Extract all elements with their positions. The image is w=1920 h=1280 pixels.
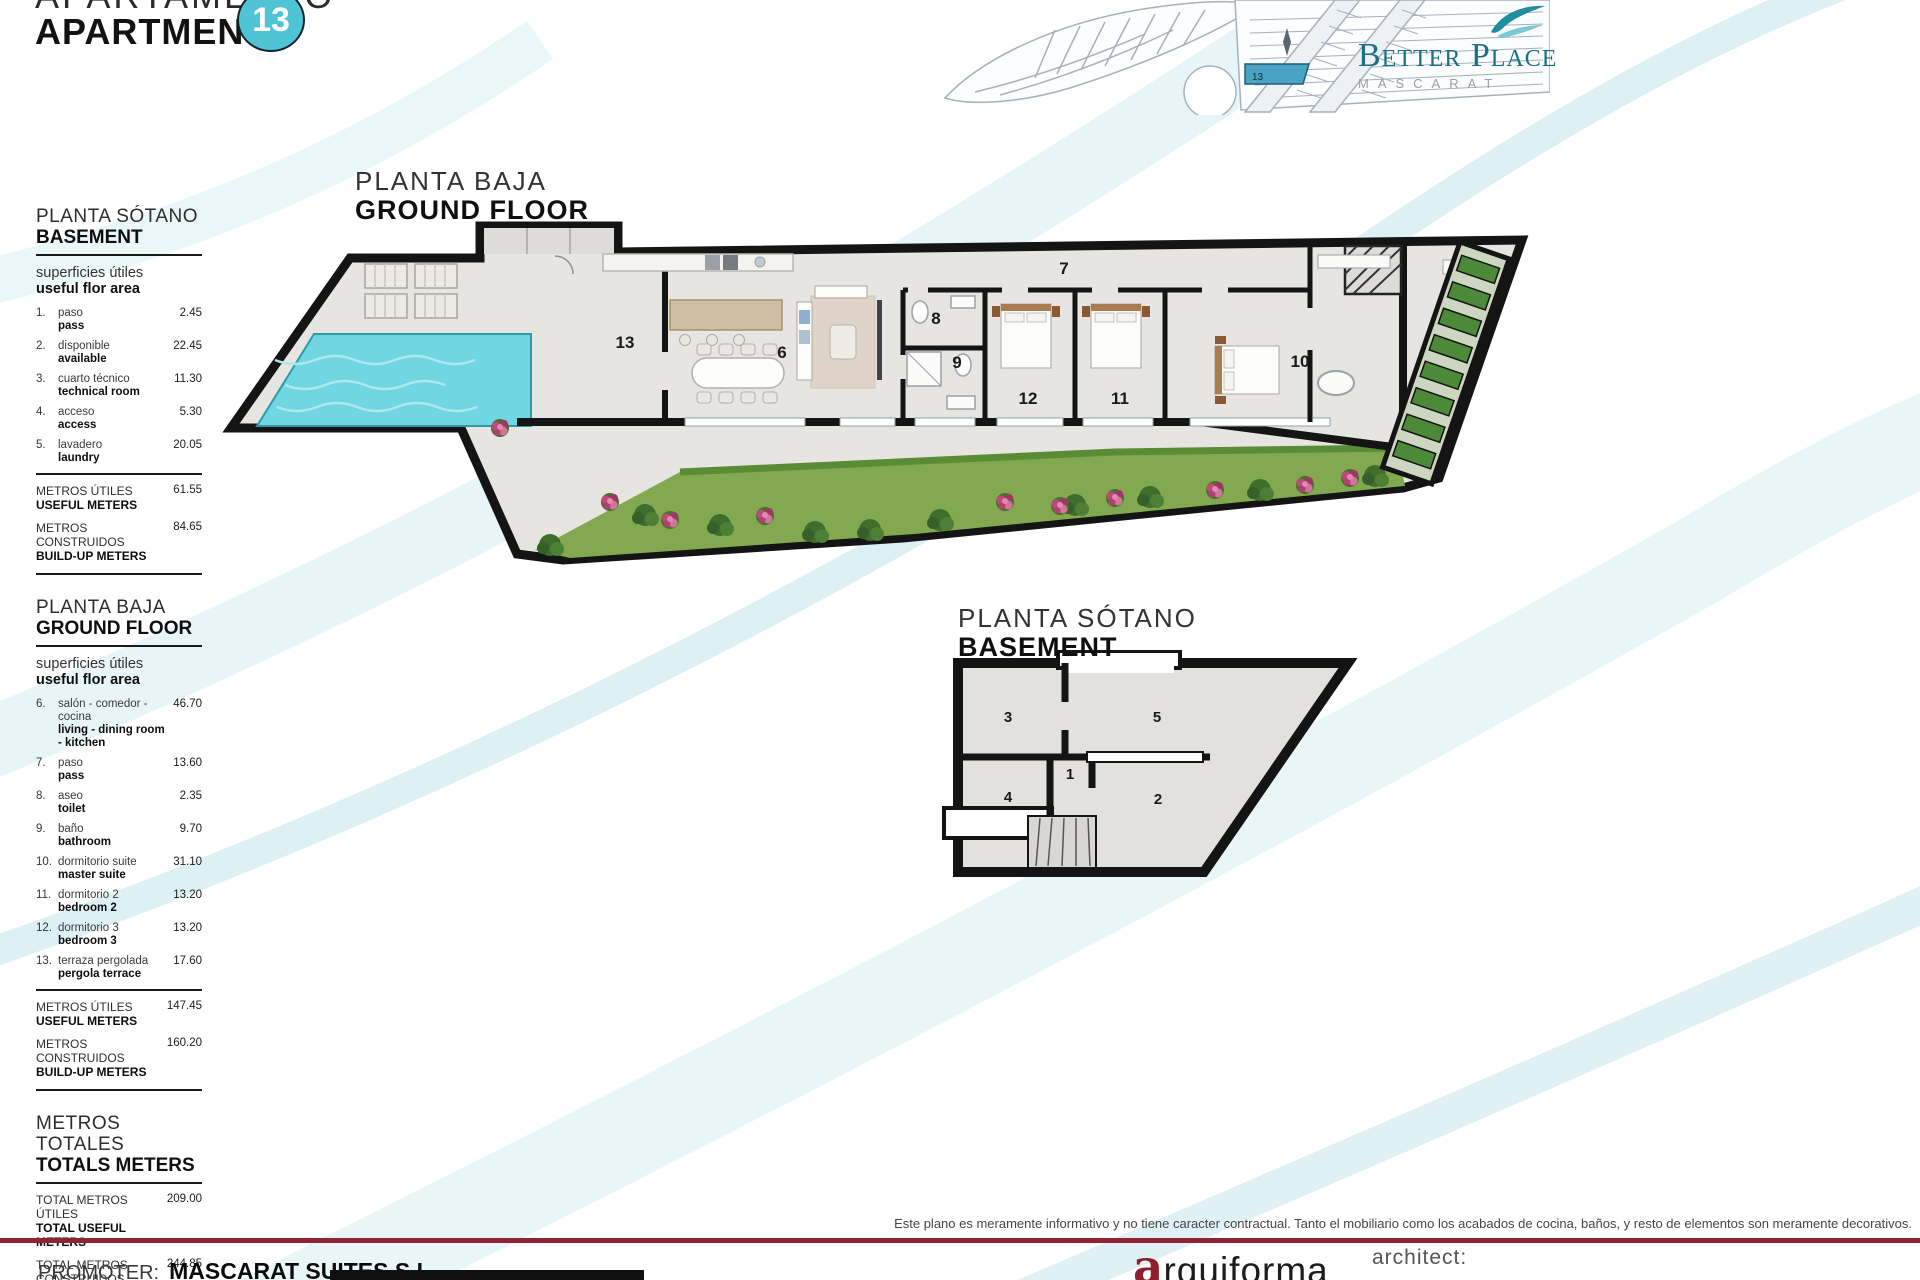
room-number: 3 (1004, 709, 1012, 726)
row-value: 17.60 (173, 955, 202, 968)
total-label: METROS ÚTILESUSEFUL METERS (36, 1000, 167, 1028)
row-value: 2.35 (180, 790, 202, 803)
row-value: 46.70 (173, 698, 202, 711)
total-row: METROS CONSTRUIDOSBUILD-UP METERS84.65 (36, 521, 202, 563)
row-label: salón - comedor - cocinaliving - dining … (58, 698, 173, 750)
sidebar: PLANTA SÓTANOBASEMENTsuperficies útilesu… (36, 206, 202, 1280)
basement-stairs-icon (1028, 816, 1096, 868)
row-value: 13.20 (173, 922, 202, 935)
divider (36, 573, 202, 576)
basement-label: PLANTA SÓTANO BASEMENT (958, 604, 1197, 662)
row-label: dormitorio 3bedroom 3 (58, 922, 173, 948)
studio-initial: a (1133, 1240, 1163, 1280)
architect-label: architect: (1372, 1246, 1467, 1270)
room-number: 2 (1154, 791, 1162, 808)
section-subtitle: superficies útilesuseful flor area (36, 265, 202, 297)
room-number: 7 (1059, 259, 1068, 278)
site-unit-label: 13 (1252, 72, 1264, 83)
divider (36, 1089, 202, 1092)
row-number: 3. (36, 373, 58, 386)
row-value: 13.20 (173, 889, 202, 902)
row-value: 20.05 (173, 439, 202, 452)
room-number: 10 (1291, 352, 1310, 371)
bed-icon (1082, 304, 1150, 368)
room-number: 1 (1066, 766, 1074, 783)
divider (36, 254, 202, 256)
row-label: pasopass (58, 307, 180, 333)
studio-name-rest: rquiforma (1163, 1250, 1328, 1280)
sidebar-section: PLANTA SÓTANOBASEMENTsuperficies útilesu… (36, 206, 202, 575)
row-value: 22.45 (173, 340, 202, 353)
basement-label-es: PLANTA SÓTANO (958, 604, 1197, 632)
area-row: 8.aseotoilet2.35 (36, 790, 202, 816)
row-number: 6. (36, 698, 58, 711)
total-row: METROS ÚTILESUSEFUL METERS147.45 (36, 1000, 202, 1028)
footer-divider-line (0, 1238, 1920, 1243)
area-row: 9.bañobathroom9.70 (36, 823, 202, 849)
sidebar-section: PLANTA BAJAGROUND FLOORsuperficies útile… (36, 597, 202, 1091)
area-row: 2.disponibleavailable22.45 (36, 340, 202, 366)
architect-studio-logo: arquiforma (1133, 1244, 1329, 1280)
total-value: 209.00 (167, 1193, 202, 1206)
total-row: METROS CONSTRUIDOSBUILD-UP METERS160.20 (36, 1037, 202, 1079)
row-value: 5.30 (180, 406, 202, 419)
page: APARTAMENTO APARTMENT 13 (0, 0, 1920, 1280)
area-row: 1.pasopass2.45 (36, 307, 202, 333)
area-row: 5.lavaderolaundry20.05 (36, 439, 202, 465)
room-number: 12 (1019, 389, 1038, 408)
wall-slot-opening (1087, 752, 1203, 762)
total-value: 160.20 (167, 1037, 202, 1050)
row-label: dormitorio suitemaster suite (58, 856, 173, 882)
row-number: 7. (36, 757, 58, 770)
row-number: 1. (36, 307, 58, 320)
total-label: METROS CONSTRUIDOSBUILD-UP METERS (36, 1037, 167, 1079)
row-value: 31.10 (173, 856, 202, 869)
row-number: 13. (36, 955, 58, 968)
area-row: 11.dormitorio 2bedroom 213.20 (36, 889, 202, 915)
divider (36, 473, 202, 475)
row-label: disponibleavailable (58, 340, 173, 366)
sidebar-section: METROS TOTALESTOTALS METERSTOTAL METROS … (36, 1113, 202, 1280)
room-number: 13 (616, 333, 635, 352)
brand-name: Better Place (1358, 38, 1558, 74)
total-value: 147.45 (167, 1000, 202, 1013)
room-number: 8 (931, 309, 940, 328)
bed-icon (992, 304, 1060, 368)
row-number: 8. (36, 790, 58, 803)
total-row: METROS ÚTILESUSEFUL METERS61.55 (36, 484, 202, 512)
section-title: PLANTA BAJAGROUND FLOOR (36, 597, 202, 639)
total-value: 61.55 (173, 484, 202, 497)
basement-label-en: BASEMENT (958, 632, 1197, 662)
row-number: 11. (36, 889, 58, 902)
area-row: 12.dormitorio 3bedroom 313.20 (36, 922, 202, 948)
master-bed-icon (1215, 336, 1279, 404)
section-title: METROS TOTALESTOTALS METERS (36, 1113, 202, 1176)
row-label: pasopass (58, 757, 173, 783)
window-glazing (685, 418, 1330, 426)
divider (36, 645, 202, 647)
row-value: 2.45 (180, 307, 202, 320)
room-number: 11 (1111, 389, 1129, 408)
ground-label-en: GROUND FLOOR (355, 195, 589, 225)
divider (36, 1182, 202, 1184)
basement-outline (958, 663, 1348, 872)
room-number: 5 (1153, 709, 1161, 726)
footer-black-bar (330, 1270, 644, 1280)
section-title: PLANTA SÓTANOBASEMENT (36, 206, 202, 248)
row-number: 4. (36, 406, 58, 419)
total-label: METROS CONSTRUIDOSBUILD-UP METERS (36, 521, 173, 563)
disclaimer-text: Este plano es meramente informativo y no… (894, 1216, 1912, 1231)
unit-number: 13 (252, 1, 290, 40)
row-number: 12. (36, 922, 58, 935)
brand-subname: MASCARAT (1358, 76, 1558, 91)
planter-flowers (491, 419, 509, 437)
ground-floor-plan: 13 6 8 9 7 12 11 10 (215, 200, 1555, 620)
brand-swoosh-icon (1487, 2, 1549, 40)
total-value: 84.65 (173, 521, 202, 534)
row-number: 9. (36, 823, 58, 836)
row-value: 11.30 (174, 373, 202, 386)
row-number: 2. (36, 340, 58, 353)
row-value: 9.70 (180, 823, 202, 836)
brand-logo: Better Place MASCARAT (1358, 38, 1558, 91)
row-label: dormitorio 2bedroom 2 (58, 889, 173, 915)
ground-label-es: PLANTA BAJA (355, 167, 589, 195)
row-label: lavaderolaundry (58, 439, 173, 465)
row-label: cuarto técnicotechnical room (58, 373, 174, 399)
room-number: 9 (952, 353, 961, 372)
row-label: terraza pergoladapergola terrace (58, 955, 173, 981)
total-label: METROS ÚTILESUSEFUL METERS (36, 484, 173, 512)
row-number: 5. (36, 439, 58, 452)
row-label: accesoaccess (58, 406, 180, 432)
area-row: 13.terraza pergoladapergola terrace17.60 (36, 955, 202, 981)
promoter-label: PROMOTER: (38, 1262, 159, 1280)
stairs-icon (1345, 246, 1401, 294)
row-label: aseotoilet (58, 790, 180, 816)
area-row: 4.accesoaccess5.30 (36, 406, 202, 432)
row-value: 13.60 (173, 757, 202, 770)
area-row: 6.salón - comedor - cocinaliving - dinin… (36, 698, 202, 750)
row-number: 10. (36, 856, 58, 869)
area-row: 3.cuarto técnicotechnical room11.30 (36, 373, 202, 399)
room-number: 6 (777, 343, 786, 362)
basement-plan: 3 5 1 4 2 (940, 650, 1360, 885)
row-label: bañobathroom (58, 823, 180, 849)
area-row: 7.pasopass13.60 (36, 757, 202, 783)
area-row: 10.dormitorio suitemaster suite31.10 (36, 856, 202, 882)
ground-floor-label: PLANTA BAJA GROUND FLOOR (355, 167, 589, 225)
divider (36, 989, 202, 991)
section-subtitle: superficies útilesuseful flor area (36, 656, 202, 688)
room-number: 4 (1004, 789, 1013, 806)
